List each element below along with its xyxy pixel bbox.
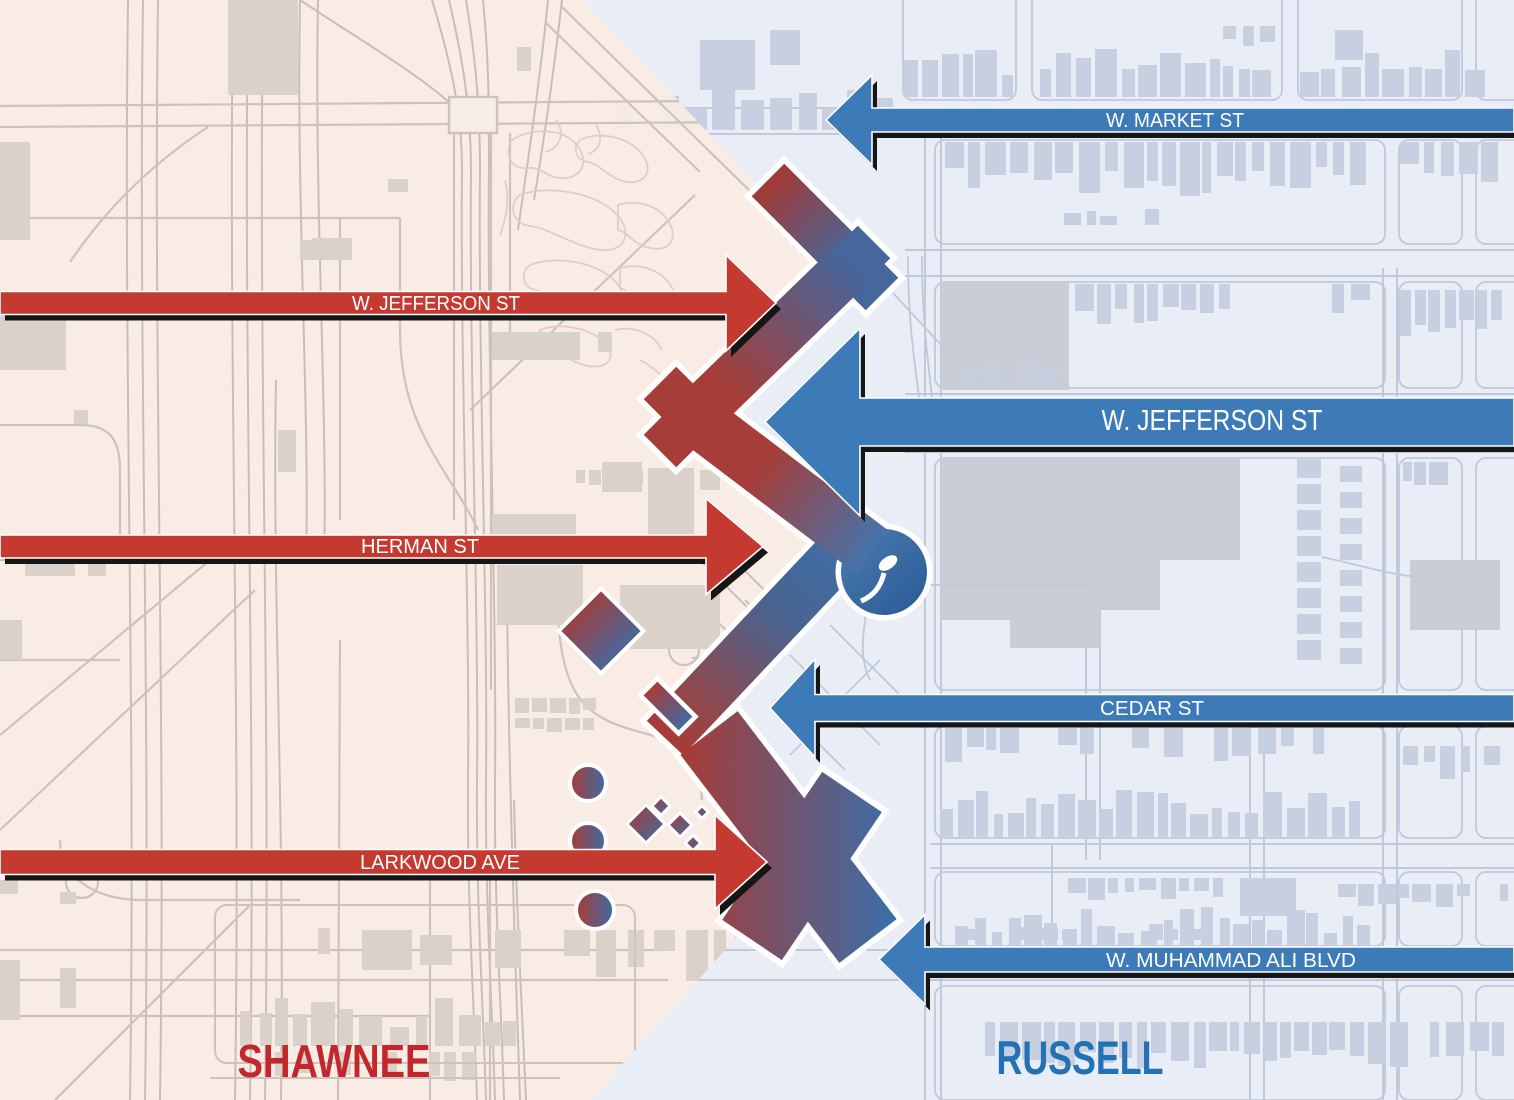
svg-text:W. MUHAMMAD ALI BLVD: W. MUHAMMAD ALI BLVD bbox=[1106, 950, 1356, 972]
svg-text:W. MARKET ST: W. MARKET ST bbox=[1106, 110, 1244, 132]
svg-text:W. JEFFERSON ST: W. JEFFERSON ST bbox=[352, 293, 520, 315]
svg-text:CEDAR ST: CEDAR ST bbox=[1100, 698, 1204, 720]
svg-text:LARKWOOD AVE: LARKWOOD AVE bbox=[360, 852, 520, 874]
svg-text:RUSSELL: RUSSELL bbox=[997, 1031, 1164, 1084]
svg-text:HERMAN ST: HERMAN ST bbox=[361, 536, 479, 558]
svg-text:SHAWNEE: SHAWNEE bbox=[238, 1035, 431, 1087]
svg-text:W. JEFFERSON ST: W. JEFFERSON ST bbox=[1102, 405, 1323, 437]
